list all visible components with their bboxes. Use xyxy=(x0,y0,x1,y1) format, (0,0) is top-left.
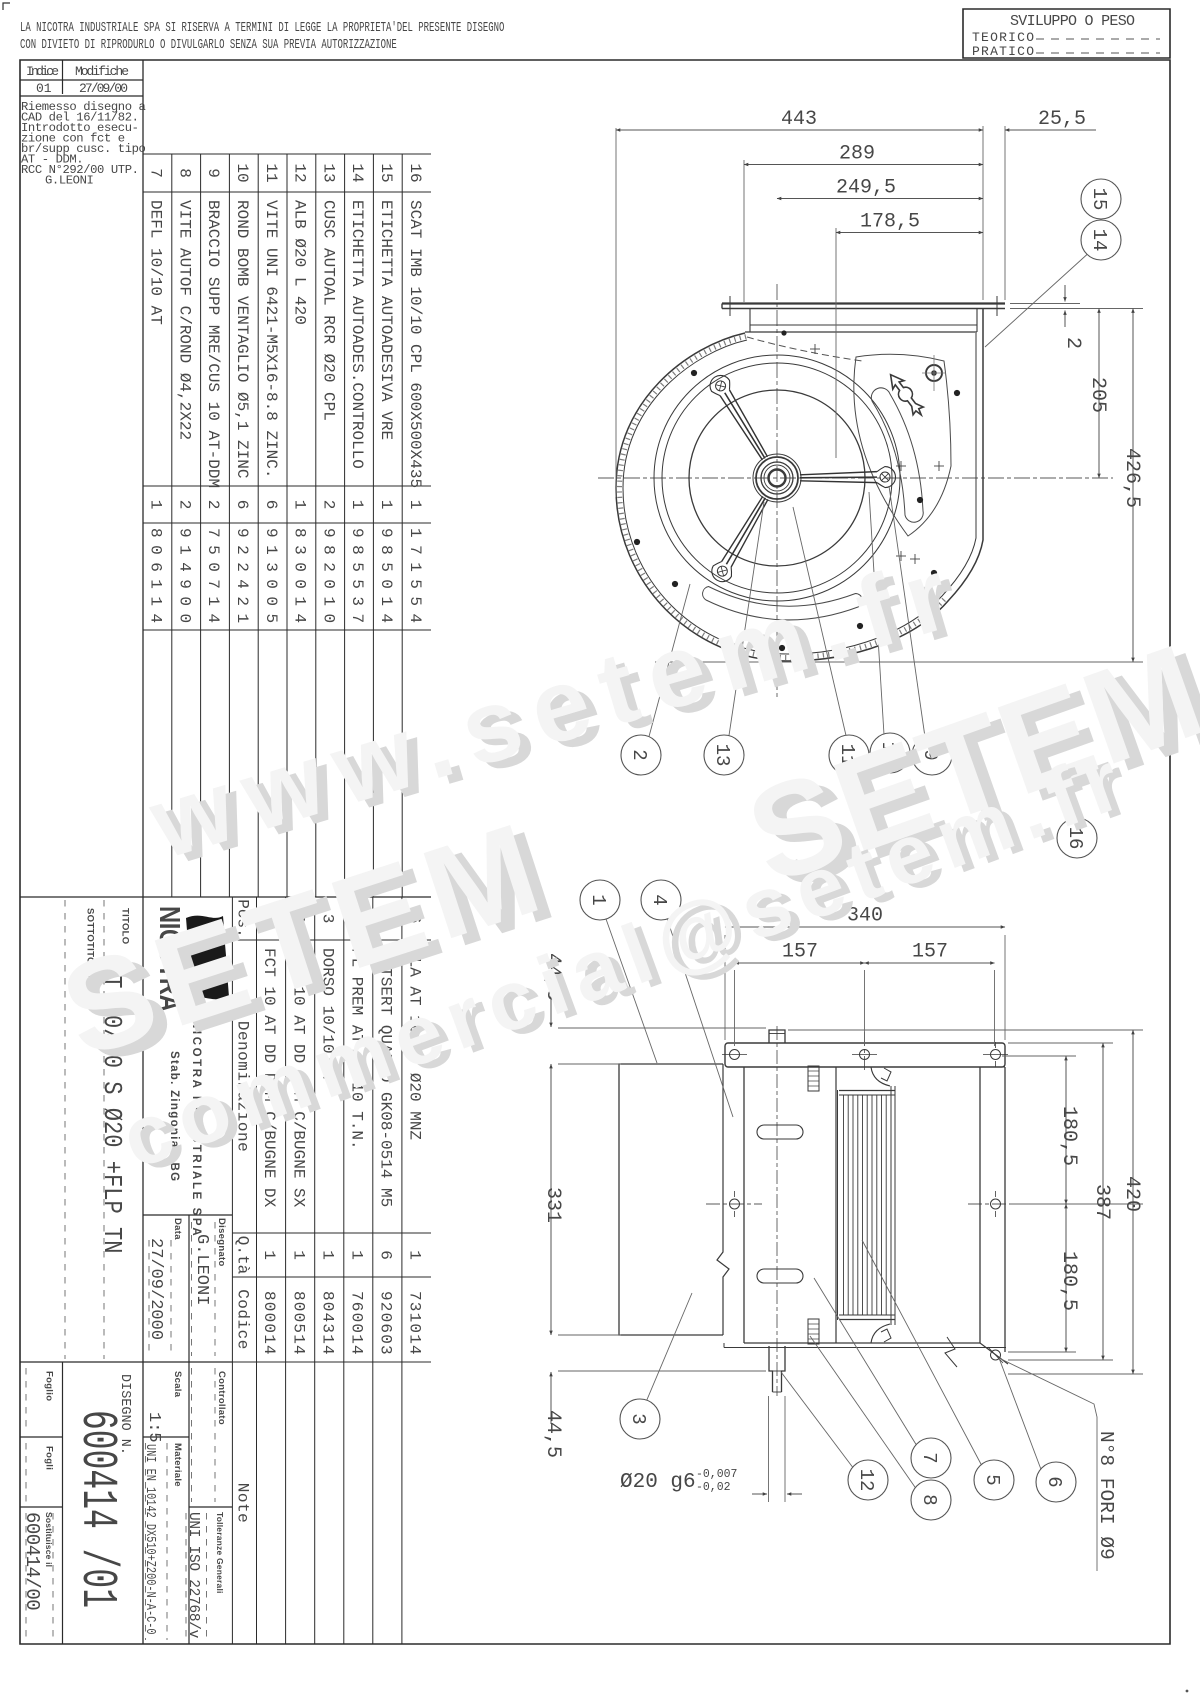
svg-text:1: 1 xyxy=(587,894,609,905)
svg-text:13: 13 xyxy=(711,744,733,767)
svg-text:Ø20 g6: Ø20 g6 xyxy=(620,1471,696,1494)
svg-text:1: 1 xyxy=(348,1250,366,1260)
svg-text:914900: 914900 xyxy=(175,528,193,631)
svg-text:750714: 750714 xyxy=(204,528,222,631)
svg-text:731014: 731014 xyxy=(406,1291,424,1356)
svg-text:830014: 830014 xyxy=(291,528,309,631)
svg-text:Q.tà: Q.tà xyxy=(234,1236,252,1275)
svg-text:800514: 800514 xyxy=(289,1291,307,1356)
svg-text:Sostituisce il: Sostituisce il xyxy=(44,1512,54,1567)
svg-text:1: 1 xyxy=(406,500,424,510)
svg-text:982010: 982010 xyxy=(319,528,337,631)
svg-text:CON DIVIETO DI RIPRODURLO O DI: CON DIVIETO DI RIPRODURLO O DIVULGARLO S… xyxy=(20,37,397,52)
svg-text:7: 7 xyxy=(147,168,165,178)
svg-text:420: 420 xyxy=(1120,1176,1143,1212)
svg-text:Indice: Indice xyxy=(26,64,59,79)
svg-text:1: 1 xyxy=(289,1250,307,1260)
svg-text:Data: Data xyxy=(172,1218,183,1240)
svg-text:1: 1 xyxy=(348,500,366,510)
svg-text:Scala: Scala xyxy=(172,1371,183,1398)
svg-text:G.LEONI: G.LEONI xyxy=(45,174,93,188)
svg-text:6: 6 xyxy=(1043,1476,1065,1487)
svg-text:N°8 FORI Ø9: N°8 FORI Ø9 xyxy=(1095,1431,1117,1560)
svg-text:SVILUPPO O PESO: SVILUPPO O PESO xyxy=(1010,13,1135,30)
svg-text:157: 157 xyxy=(912,941,948,964)
svg-text:8: 8 xyxy=(175,168,193,178)
svg-text:Disegnato: Disegnato xyxy=(216,1218,227,1267)
svg-text:ROND BOMB VENTAGLIO Ø5,1 ZINC: ROND BOMB VENTAGLIO Ø5,1 ZINC xyxy=(233,200,251,478)
svg-text:12: 12 xyxy=(855,1469,877,1492)
svg-text:171554: 171554 xyxy=(406,528,424,631)
svg-text:25,5: 25,5 xyxy=(1038,108,1086,131)
svg-text:1: 1 xyxy=(147,500,165,510)
svg-text:180,5: 180,5 xyxy=(1057,1251,1080,1311)
svg-text:G.LEONI: G.LEONI xyxy=(192,1234,211,1305)
svg-text:2: 2 xyxy=(319,500,337,510)
svg-text:11: 11 xyxy=(262,163,280,182)
svg-text:VITE UNI 6421-M5X16-8.8 ZINC.: VITE UNI 6421-M5X16-8.8 ZINC. xyxy=(262,200,280,478)
svg-text:180,5: 180,5 xyxy=(1057,1106,1080,1166)
svg-text:12: 12 xyxy=(291,163,309,182)
svg-text:920603: 920603 xyxy=(377,1291,395,1356)
svg-text:443: 443 xyxy=(781,108,817,131)
svg-text:10: 10 xyxy=(233,163,251,182)
svg-text:44,5: 44,5 xyxy=(541,1410,564,1458)
svg-text:15: 15 xyxy=(1088,188,1110,211)
svg-text:7: 7 xyxy=(918,1452,940,1463)
svg-text:804314: 804314 xyxy=(318,1291,336,1356)
svg-text:2: 2 xyxy=(175,500,193,510)
svg-text:ALB Ø20 L 420: ALB Ø20 L 420 xyxy=(291,200,309,325)
svg-text:UNI ISO 22768/v: UNI ISO 22768/v xyxy=(185,1512,201,1639)
svg-text:922421: 922421 xyxy=(233,528,251,631)
svg-text:387: 387 xyxy=(1090,1184,1113,1220)
svg-text:205: 205 xyxy=(1086,377,1109,413)
svg-text:16: 16 xyxy=(406,163,424,182)
svg-text:15: 15 xyxy=(377,163,395,182)
svg-text:913005: 913005 xyxy=(262,528,280,631)
svg-text:600414 /01: 600414 /01 xyxy=(69,1410,126,1608)
svg-text:2: 2 xyxy=(204,500,222,510)
svg-text:9: 9 xyxy=(204,168,222,178)
svg-text:14: 14 xyxy=(348,163,366,182)
svg-text:800014: 800014 xyxy=(260,1291,278,1356)
svg-text:806114: 806114 xyxy=(147,528,165,631)
svg-text:CUSC AUTOAL RCR Ø20 CPL: CUSC AUTOAL RCR Ø20 CPL xyxy=(319,200,337,421)
svg-text:289: 289 xyxy=(839,143,875,166)
svg-text:LA NICOTRA INDUSTRIALE SPA SI: LA NICOTRA INDUSTRIALE SPA SI RISERVA A … xyxy=(20,20,505,35)
svg-text:600414/00: 600414/00 xyxy=(21,1512,43,1610)
svg-text:249,5: 249,5 xyxy=(836,177,896,200)
svg-text:6: 6 xyxy=(262,500,280,510)
svg-text:2: 2 xyxy=(1061,337,1084,349)
svg-text:1: 1 xyxy=(377,500,395,510)
svg-text:Tolleranze Generali: Tolleranze Generali xyxy=(215,1512,225,1594)
svg-text:8: 8 xyxy=(918,1494,940,1505)
svg-text:1: 1 xyxy=(318,1250,336,1260)
svg-text:UNI EN 10142 DX510+Z200-N-A-C-: UNI EN 10142 DX510+Z200-N-A-C-0 xyxy=(142,1444,158,1635)
svg-text:1:5: 1:5 xyxy=(144,1412,163,1443)
svg-text:Controllato: Controllato xyxy=(216,1371,227,1425)
svg-text:1: 1 xyxy=(260,1250,278,1260)
svg-text:Modifiche: Modifiche xyxy=(75,64,129,79)
svg-text:6: 6 xyxy=(377,1250,395,1260)
svg-text:985014: 985014 xyxy=(377,528,395,631)
svg-text:331: 331 xyxy=(541,1187,564,1223)
svg-text:Foglio: Foglio xyxy=(44,1371,55,1401)
svg-text:6: 6 xyxy=(233,500,251,510)
svg-text:DEFL 10/10 AT: DEFL 10/10 AT xyxy=(147,200,165,325)
svg-text:5: 5 xyxy=(981,1474,1003,1485)
svg-text:BRACCIO SUPP MRE/CUS 10 AT-DDM: BRACCIO SUPP MRE/CUS 10 AT-DDM xyxy=(204,200,222,488)
svg-text:13: 13 xyxy=(319,163,337,182)
svg-text:Materiale: Materiale xyxy=(172,1443,183,1487)
svg-text:ETICHETTA AUTOADES.CONTROLLO: ETICHETTA AUTOADES.CONTROLLO xyxy=(348,200,366,469)
svg-text:14: 14 xyxy=(1088,229,1110,252)
svg-text:Codice: Codice xyxy=(234,1289,252,1350)
svg-text:01: 01 xyxy=(36,81,52,96)
svg-text:760014: 760014 xyxy=(348,1291,366,1356)
svg-text:Fogli: Fogli xyxy=(44,1446,55,1470)
svg-text:27/09/2000: 27/09/2000 xyxy=(146,1238,165,1340)
svg-text:3: 3 xyxy=(627,1413,649,1424)
svg-text:Note: Note xyxy=(234,1483,252,1523)
svg-text:TEORICO: TEORICO xyxy=(972,30,1034,45)
svg-text:PRATICO: PRATICO xyxy=(972,44,1034,59)
svg-text:SCAT IMB 10/10 CPL 600X500X435: SCAT IMB 10/10 CPL 600X500X435 xyxy=(406,200,424,488)
svg-text:985537: 985537 xyxy=(348,528,366,631)
svg-text:27/09/00: 27/09/00 xyxy=(79,81,128,96)
svg-text:-0,007: -0,007 xyxy=(696,1468,737,1481)
svg-text:1: 1 xyxy=(406,1250,424,1260)
svg-text:VITE AUTOF C/ROND Ø4,2X22: VITE AUTOF C/ROND Ø4,2X22 xyxy=(175,200,193,440)
svg-text:426,5: 426,5 xyxy=(1120,448,1143,508)
svg-text:2: 2 xyxy=(628,749,650,760)
svg-text:178,5: 178,5 xyxy=(860,211,920,234)
svg-text:-0,02: -0,02 xyxy=(696,1481,731,1494)
svg-text:ETICHETTA AUTOADESIVA VRE: ETICHETTA AUTOADESIVA VRE xyxy=(377,200,395,440)
svg-text:1: 1 xyxy=(291,500,309,510)
